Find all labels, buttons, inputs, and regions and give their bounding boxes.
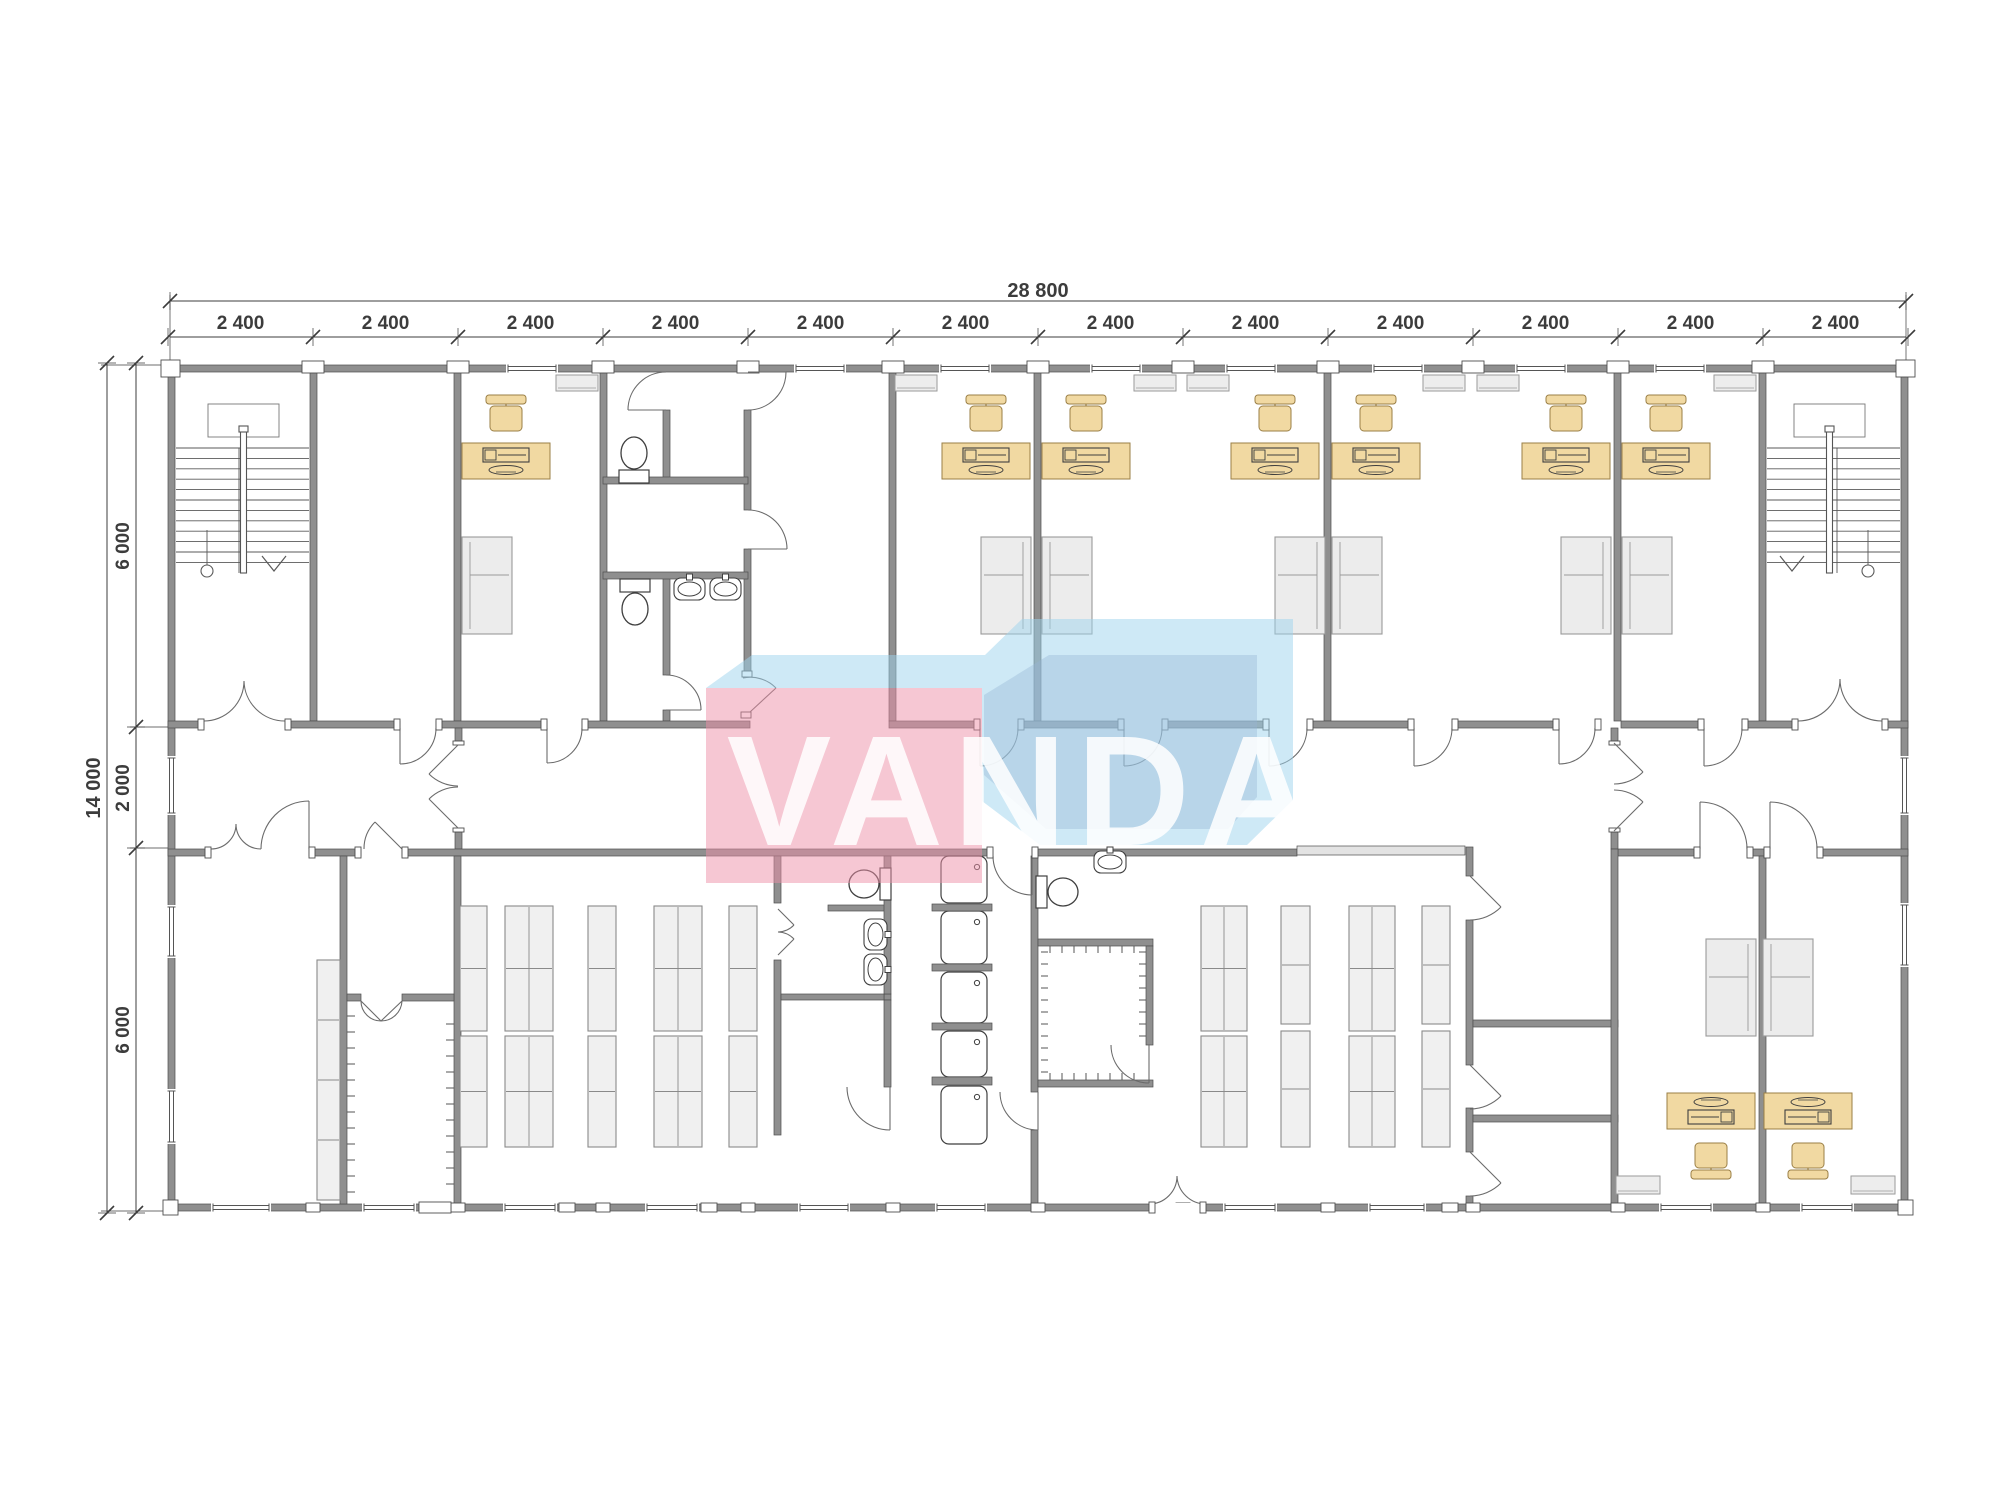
svg-text:2 400: 2 400: [1232, 313, 1280, 334]
svg-text:2 400: 2 400: [362, 313, 410, 334]
svg-text:2 400: 2 400: [942, 313, 990, 334]
svg-text:6 000: 6 000: [113, 1006, 134, 1054]
svg-text:2 400: 2 400: [507, 313, 555, 334]
svg-text:6 000: 6 000: [113, 522, 134, 570]
svg-text:28 800: 28 800: [1007, 280, 1068, 302]
svg-text:2 400: 2 400: [797, 313, 845, 334]
svg-text:VANDA: VANDA: [727, 704, 1324, 879]
svg-text:2 400: 2 400: [1667, 313, 1715, 334]
svg-text:2 400: 2 400: [652, 313, 700, 334]
svg-text:2 400: 2 400: [1087, 313, 1135, 334]
svg-text:2 400: 2 400: [217, 313, 265, 334]
svg-text:2 400: 2 400: [1377, 313, 1425, 334]
svg-text:2 000: 2 000: [113, 764, 134, 812]
svg-text:2 400: 2 400: [1522, 313, 1570, 334]
svg-text:14 000: 14 000: [83, 757, 105, 818]
svg-text:2 400: 2 400: [1812, 313, 1860, 334]
